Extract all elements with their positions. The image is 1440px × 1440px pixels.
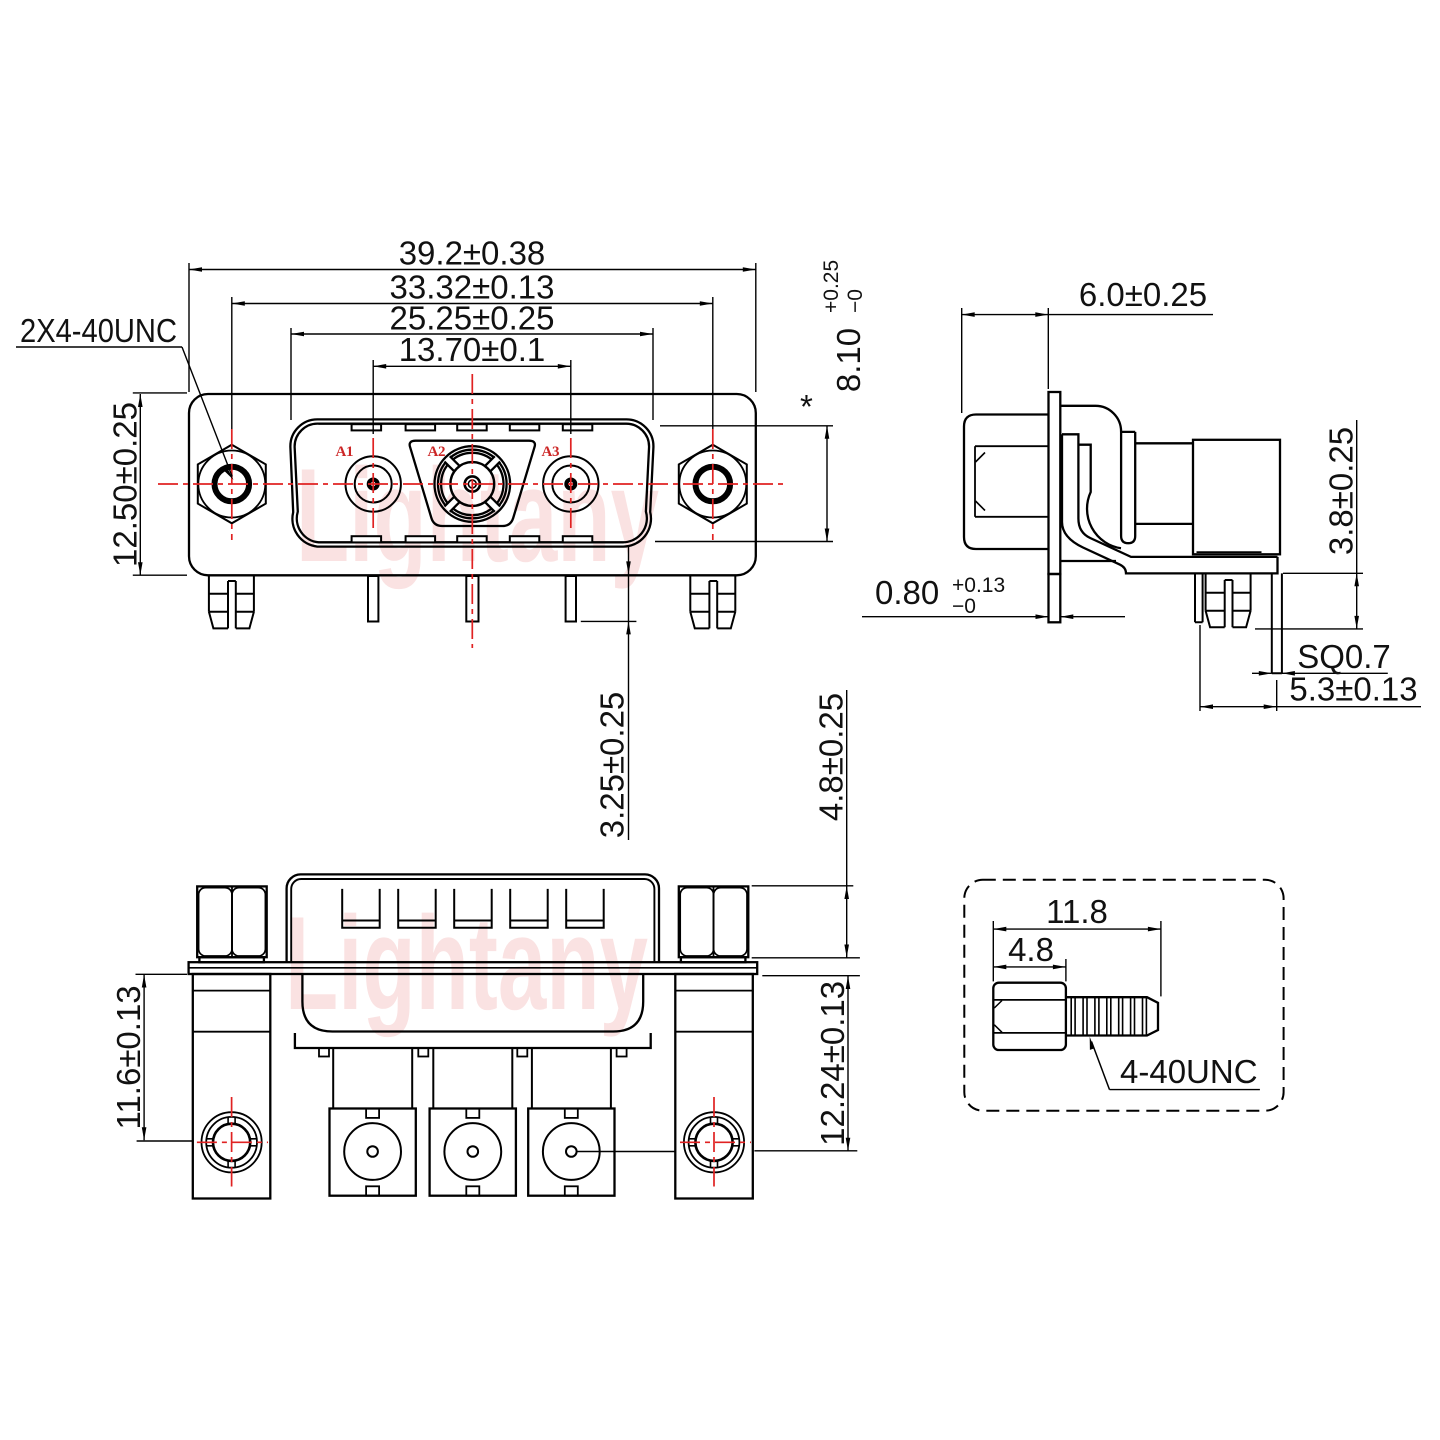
svg-text:5.3±0.13: 5.3±0.13 (1289, 671, 1417, 708)
svg-text:4.8±0.25: 4.8±0.25 (813, 693, 850, 821)
svg-text:2X4-40UNC: 2X4-40UNC (20, 312, 177, 349)
svg-text:4.8: 4.8 (1008, 931, 1054, 968)
svg-text:+0.25: +0.25 (820, 260, 843, 313)
svg-text:4-40UNC: 4-40UNC (1120, 1053, 1258, 1090)
svg-text:12.24±0.13: 12.24±0.13 (814, 981, 851, 1146)
svg-text:A3: A3 (542, 444, 560, 460)
svg-text:A1: A1 (336, 444, 354, 460)
svg-text:39.2±0.38: 39.2±0.38 (399, 235, 546, 272)
svg-text:Lightany: Lightany (296, 442, 659, 590)
svg-text:SQ0.7: SQ0.7 (1297, 638, 1391, 675)
svg-text:0.80: 0.80 (875, 574, 939, 611)
svg-text:−0: −0 (844, 289, 867, 313)
svg-text:3.25±0.25: 3.25±0.25 (594, 692, 631, 839)
svg-text:Lightany: Lightany (285, 890, 648, 1038)
svg-text:+0.13: +0.13 (952, 574, 1005, 597)
svg-text:11.8: 11.8 (1046, 893, 1108, 930)
svg-text:8.10: 8.10 (830, 328, 867, 392)
svg-text:A2: A2 (428, 444, 446, 460)
svg-text:−0: −0 (952, 595, 976, 618)
svg-text:13.70±0.1: 13.70±0.1 (399, 331, 546, 368)
svg-text:3.8±0.25: 3.8±0.25 (1323, 427, 1360, 555)
svg-text:6.0±0.25: 6.0±0.25 (1079, 276, 1207, 313)
svg-text:11.6±0.13: 11.6±0.13 (110, 985, 147, 1129)
svg-text:*: * (800, 388, 813, 425)
svg-text:12.50±0.25: 12.50±0.25 (106, 402, 143, 567)
